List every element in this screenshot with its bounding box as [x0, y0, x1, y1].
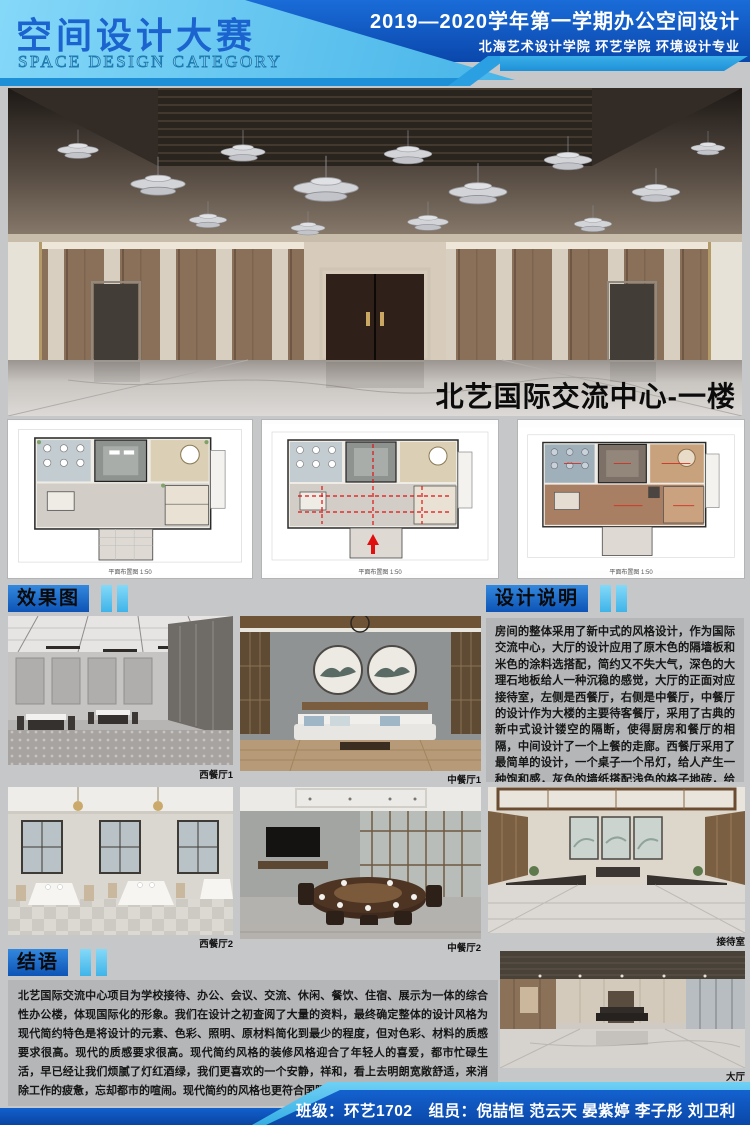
header-department-text: 北海艺术设计学院 环艺学院 环境设计专业: [479, 36, 740, 55]
floor-plan-2-caption: 平面布置图 1:50: [262, 567, 498, 576]
section-accent-bars: [101, 585, 128, 612]
section-title-effects: 效果图: [8, 585, 89, 612]
floor-plan-1: 平面布置图 1:50: [8, 420, 252, 578]
floor-plan-3-caption: 平面布置图 1:50: [518, 567, 744, 576]
photo-main-hall: [500, 951, 745, 1068]
section-header-conclusion: 结语: [8, 949, 107, 976]
accent-bar-icon: [96, 949, 107, 976]
floor-plan-1-caption: 平面布置图 1:50: [8, 567, 252, 576]
header-stripe-left: [0, 78, 462, 86]
photo-reception-room: [488, 787, 745, 933]
section-header-notes: 设计说明: [486, 585, 627, 612]
photo-west-restaurant-2: [8, 787, 233, 935]
poster-board: 2019—2020学年第一学期办公空间设计 北海艺术设计学院 环艺学院 环境设计…: [0, 0, 750, 1125]
poster-subtitle: SPACE DESIGN CATEGORY: [18, 52, 282, 72]
class-label: 班级：: [296, 1103, 344, 1120]
photo-caption: 大厅: [500, 1069, 745, 1083]
photo-caption: 接待室: [488, 934, 745, 948]
photo-caption: 西餐厅1: [8, 767, 233, 781]
section-title-conclusion: 结语: [8, 949, 68, 976]
section-header-effects: 效果图: [8, 585, 128, 612]
hall-render-graphic: [8, 88, 742, 416]
floor-plan-2: 平面布置图 1:50: [262, 420, 498, 578]
design-notes-text: 房间的整体采用了新中式的风格设计，作为国际交流中心，大厅的设计应用了原木色的隔墙…: [486, 618, 744, 782]
photo-caption: 中餐厅2: [240, 940, 481, 954]
accent-bar-icon: [600, 585, 611, 612]
header-stripe-right: [500, 56, 748, 71]
photo-chinese-restaurant-1: [240, 616, 481, 771]
accent-bar-icon: [616, 585, 627, 612]
class-value: 环艺1702: [344, 1103, 412, 1120]
photo-caption: 西餐厅2: [8, 936, 233, 950]
members-label: 组员：: [429, 1103, 477, 1120]
photo-caption: 中餐厅1: [240, 772, 481, 786]
accent-bar-icon: [117, 585, 128, 612]
hero-caption: 北艺国际交流中心-一楼: [436, 375, 736, 415]
section-title-notes: 设计说明: [486, 585, 588, 612]
footer-credits: 班级：环艺1702组员：倪喆恒 范云天 晏紫婷 李子彤 刘卫利: [296, 1099, 746, 1121]
section-accent-bars: [80, 949, 107, 976]
photo-west-restaurant-1: [8, 616, 233, 765]
section-accent-bars: [600, 585, 627, 612]
accent-bar-icon: [101, 585, 112, 612]
floor-plan-3: 平面布置图 1:50: [518, 420, 744, 578]
header-term-text: 2019—2020学年第一学期办公空间设计: [370, 5, 740, 34]
photo-chinese-restaurant-2: [240, 787, 481, 939]
accent-bar-icon: [80, 949, 91, 976]
members-names: 倪喆恒 范云天 晏紫婷 李子彤 刘卫利: [477, 1103, 736, 1120]
hero-render-image: 北艺国际交流中心-一楼: [8, 88, 742, 416]
